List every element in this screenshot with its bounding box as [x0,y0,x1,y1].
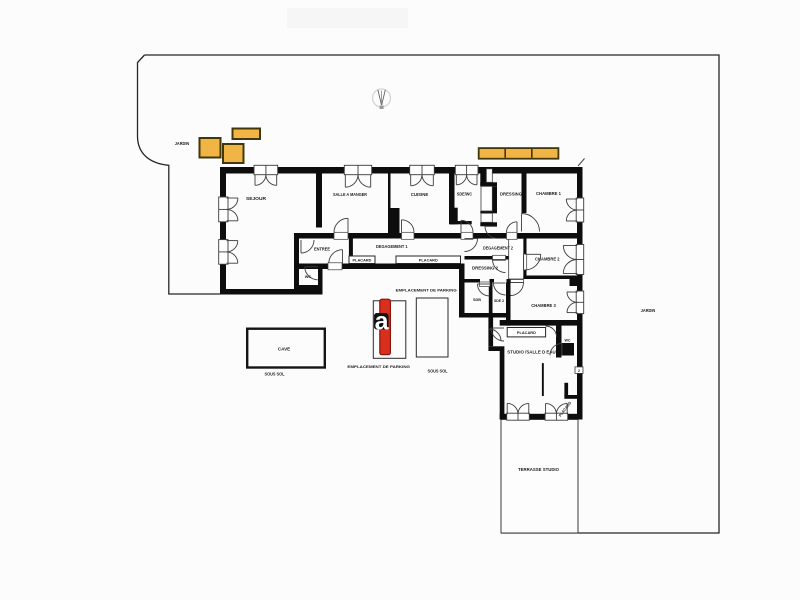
svg-text:TERRASSE STUDIO: TERRASSE STUDIO [518,467,560,472]
svg-text:DRESSING 2: DRESSING 2 [472,266,499,271]
svg-text:WC: WC [305,274,312,279]
svg-text:JARDIN: JARDIN [175,141,190,146]
svg-text:STUDIO /SALLE D EAU: STUDIO /SALLE D EAU [507,350,556,355]
svg-text:CAVE: CAVE [278,346,291,351]
svg-text:a: a [375,307,390,335]
svg-text:ENTREE: ENTREE [314,247,330,252]
svg-text:PLACARD: PLACARD [419,258,438,263]
svg-text:DEGAGEMENT 1: DEGAGEMENT 1 [376,244,408,249]
svg-text:DEGAGEMENT 2: DEGAGEMENT 2 [483,246,514,251]
svg-text:EMPLACEMENT DE PARKING: EMPLACEMENT DE PARKING [396,288,457,293]
svg-text:SEJOUR: SEJOUR [246,196,267,201]
svg-text:2: 2 [578,369,580,373]
svg-text:CHAMBRE 2: CHAMBRE 2 [535,257,560,262]
svg-text:CUISINE: CUISINE [411,192,429,197]
svg-text:SDB: SDB [473,297,481,302]
svg-text:SOUS SOL: SOUS SOL [265,372,285,377]
svg-text:SOUS SOL: SOUS SOL [428,368,448,373]
svg-text:SDE 2: SDE 2 [494,298,505,303]
svg-text:WC: WC [565,338,571,342]
svg-text:JARDIN: JARDIN [641,308,656,313]
svg-text:DRESSING: DRESSING [500,192,522,197]
svg-text:PLACARD: PLACARD [517,330,536,335]
svg-text:SDE/WC: SDE/WC [457,192,472,197]
svg-text:CHAMBRE 1: CHAMBRE 1 [536,191,562,196]
svg-text:CHAMBRE 3: CHAMBRE 3 [531,303,556,308]
svg-text:SALLE A MANGER: SALLE A MANGER [333,192,368,197]
svg-text:EMPLACEMENT DE PARKING: EMPLACEMENT DE PARKING [347,364,410,369]
svg-text:PLACARD: PLACARD [353,258,372,263]
